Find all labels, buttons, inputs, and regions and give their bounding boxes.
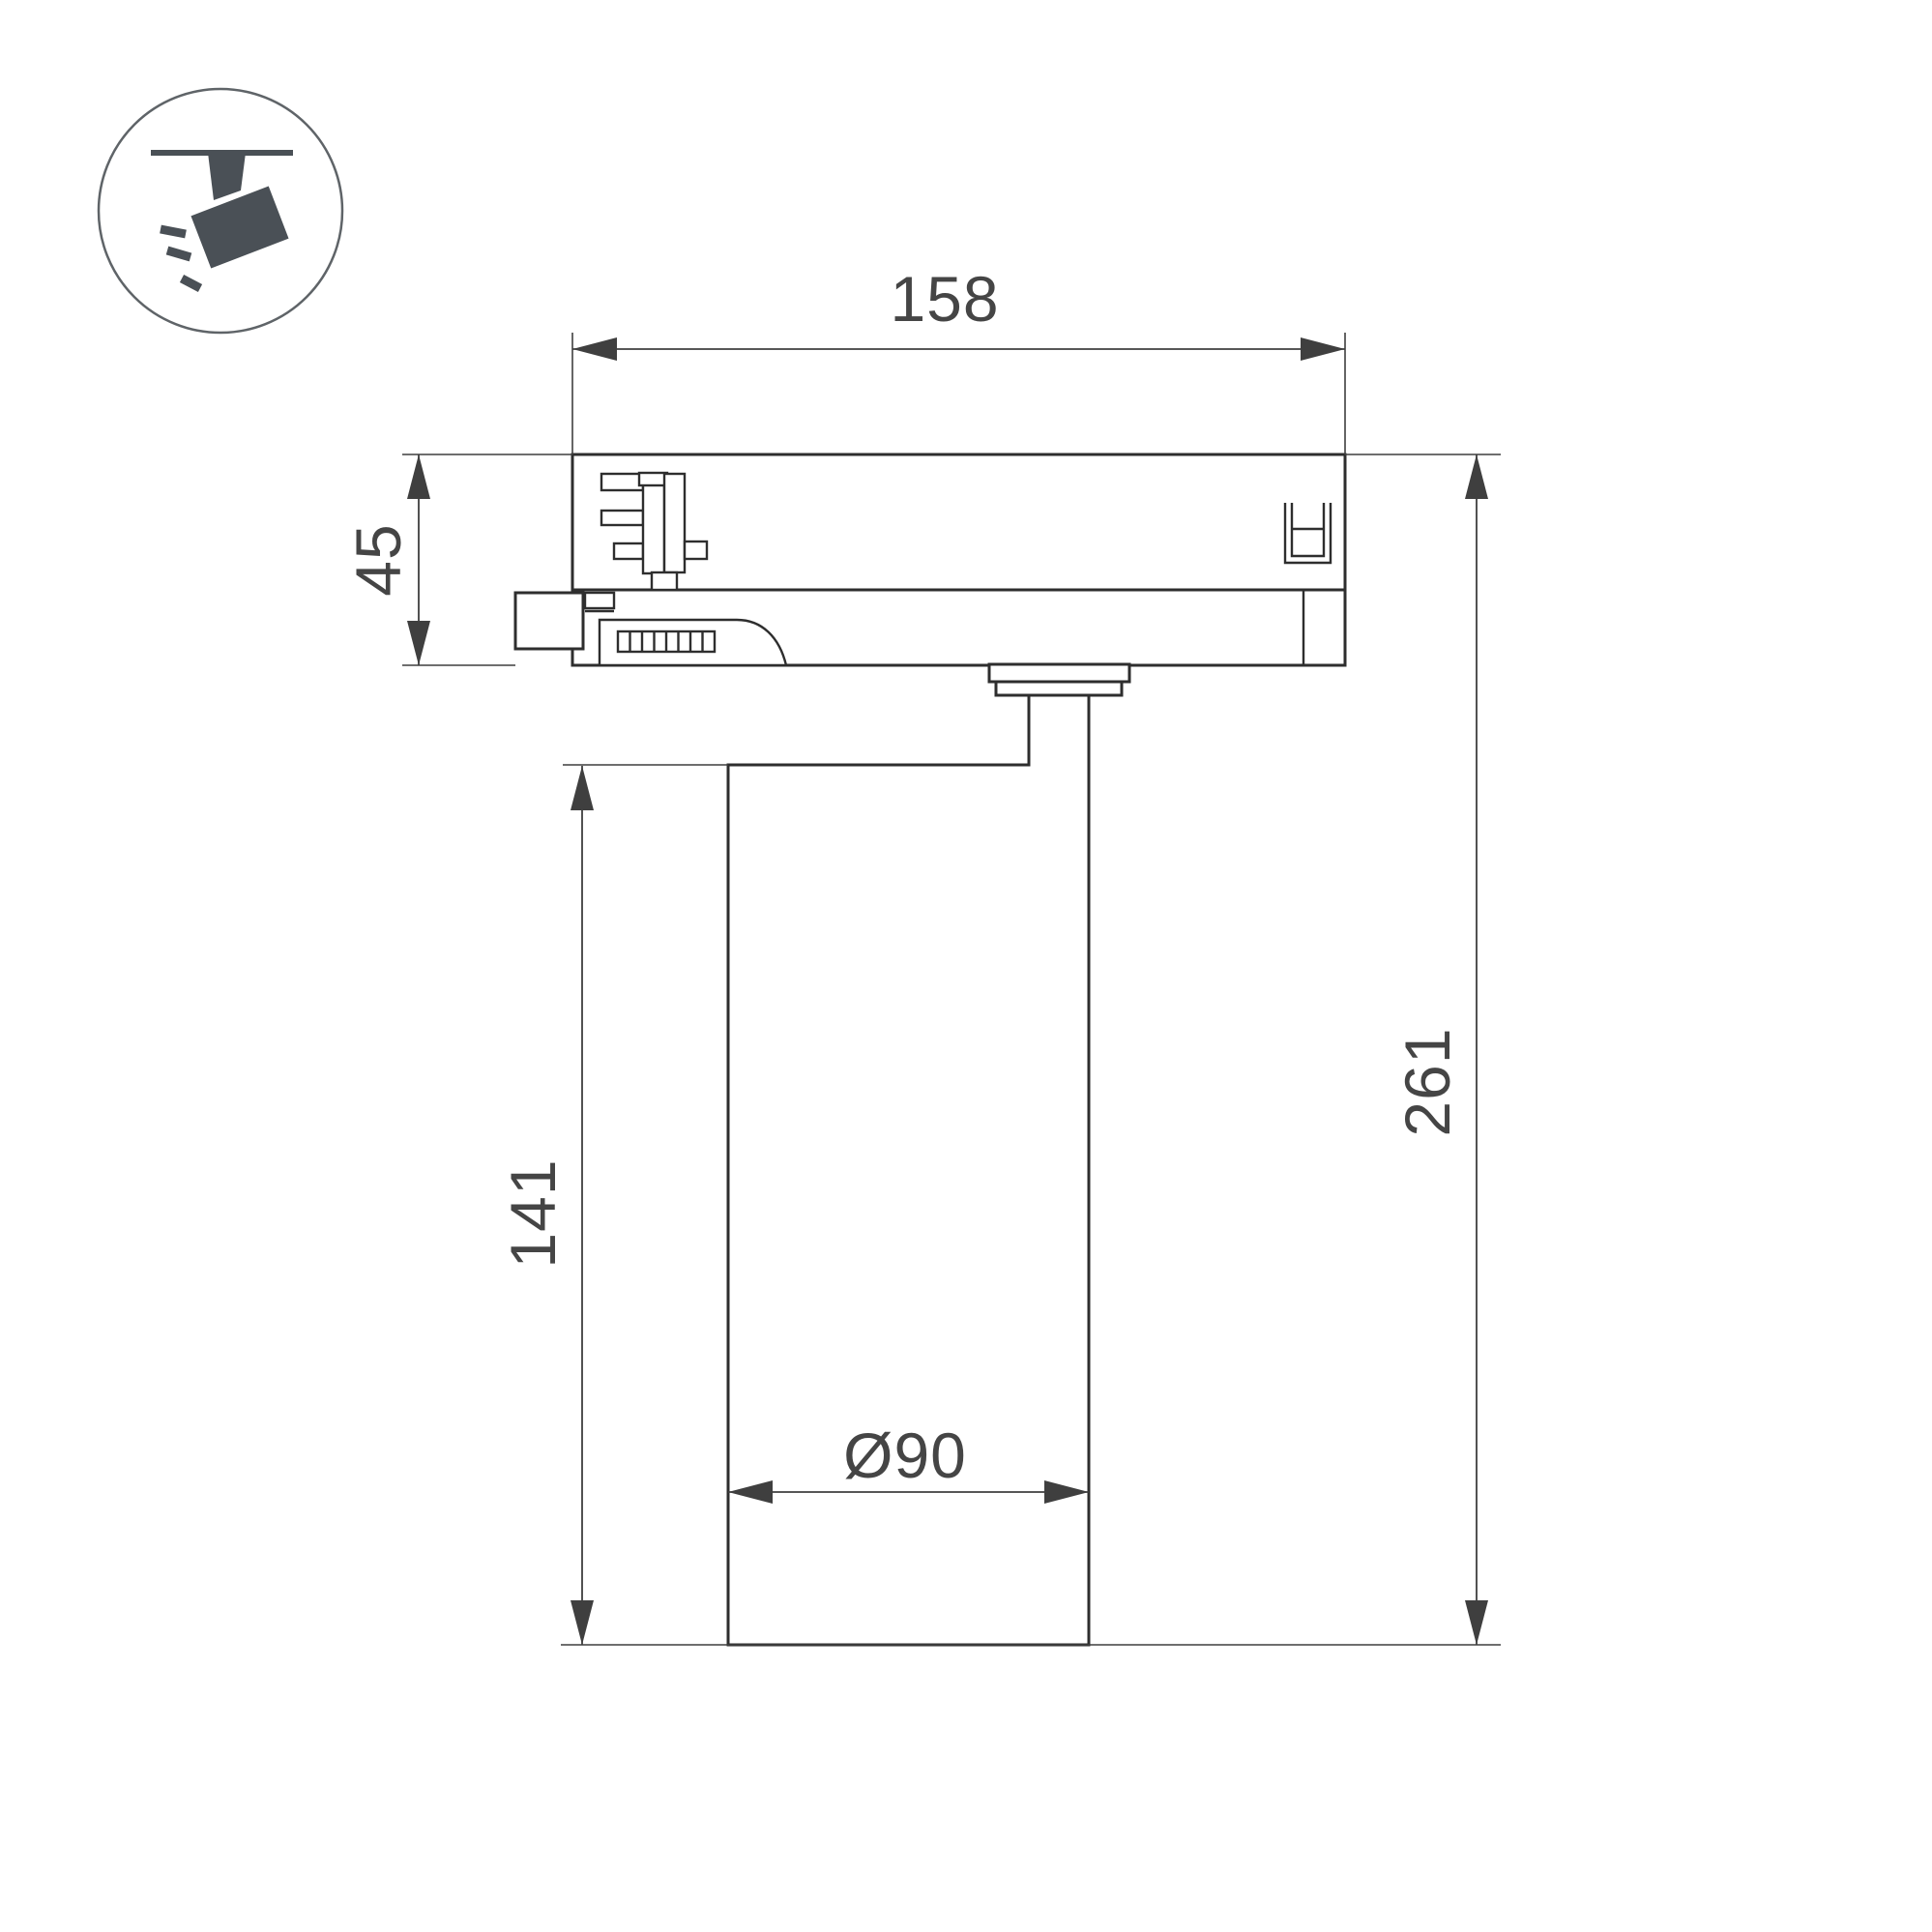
track-light-legend-icon <box>99 89 342 333</box>
flange-upper-tier <box>989 664 1129 682</box>
arrowhead-up <box>571 766 594 810</box>
arrowhead-left <box>572 337 617 361</box>
phase-selector-slider <box>618 631 715 652</box>
contact-spine <box>643 476 664 573</box>
adapter-housing <box>572 454 1345 590</box>
arrowhead-down <box>407 621 430 665</box>
track-adapter-drawing <box>515 454 1345 695</box>
contact-prong <box>614 543 643 559</box>
lamp-body-cylinder <box>728 695 1089 1645</box>
contact-prong <box>601 474 643 490</box>
arrowhead-up <box>407 454 430 499</box>
arrowhead-up <box>1465 454 1488 499</box>
dimension-label-diameter: Ø90 <box>843 1420 967 1491</box>
arrowhead-right <box>1301 337 1345 361</box>
dimension-label-141: 141 <box>497 1158 569 1268</box>
flange-lower-tier <box>996 682 1122 695</box>
contact-prong <box>601 511 643 525</box>
dimension-label-261: 261 <box>1391 1027 1463 1136</box>
light-ray-icon <box>161 229 186 234</box>
arrowhead-down <box>1465 1600 1488 1645</box>
contact-cap <box>639 473 667 485</box>
release-latch <box>515 593 583 649</box>
contact-foot <box>652 572 677 590</box>
latch-step <box>585 593 614 608</box>
dimension-body-height: 141 <box>497 765 728 1645</box>
contact-plate <box>664 474 685 572</box>
dimension-label-45: 45 <box>342 523 414 596</box>
dimension-adapter-width: 158 <box>572 263 1345 454</box>
dimension-label-158: 158 <box>890 263 999 335</box>
dimension-drawing-canvas: 158 45 141 261 Ø90 <box>0 0 1932 1932</box>
arrowhead-down <box>571 1600 594 1645</box>
contact-tab <box>685 542 707 559</box>
